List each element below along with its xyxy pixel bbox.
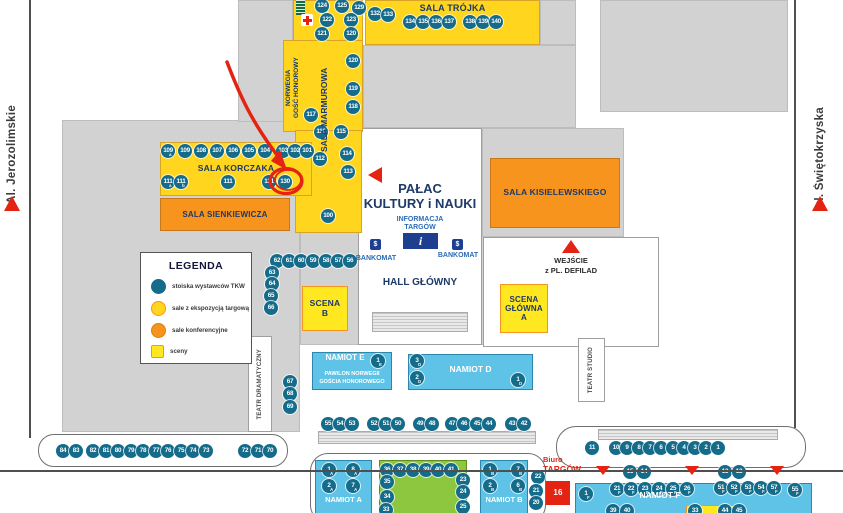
norwegia-label-2: GOŚĆ HONOROWY xyxy=(293,46,300,130)
stand-133: 133 xyxy=(381,8,395,22)
namiot-f-title: NAMIOT F xyxy=(618,491,702,500)
stand-106: 106 xyxy=(226,144,240,158)
stand-69: 69 xyxy=(283,400,297,414)
fair-information-label-line1: INFORMACJA xyxy=(370,216,470,223)
teatr-studio-label: TEATR STUDIO xyxy=(588,347,595,393)
stand-14: 14 xyxy=(637,465,651,479)
stand-11: 11 xyxy=(585,441,599,455)
scena-glowna-a-label: SCENA GŁÓWNA A xyxy=(505,295,543,323)
legend-label-2: sale konferencyjne xyxy=(172,327,228,334)
biuro-targow-16-label: 16 xyxy=(553,488,562,497)
first-aid-cross-icon xyxy=(301,14,313,26)
sala-marmurowa-label: SALA MARMUROWA xyxy=(320,50,329,170)
sala-kisielewskiego-label: SALA KISIELEWSKIEGO xyxy=(503,188,606,198)
stand-73: 73 xyxy=(199,444,213,458)
entrance-label-line1: WEJŚCIE xyxy=(531,256,611,265)
stand-48: 48 xyxy=(425,417,439,431)
fair-information-label-line2: TARGÓW xyxy=(370,224,470,231)
stand-53f: 53F xyxy=(741,481,755,495)
dollar-glyph: $ xyxy=(374,241,378,248)
stand-53: 53 xyxy=(345,417,359,431)
legend-box: LEGENDA stoiska wystawców TKWsale z eksp… xyxy=(140,252,252,364)
stand-54f: 54F xyxy=(754,481,768,495)
stand-114: 114 xyxy=(340,147,354,161)
stand-72: 72 xyxy=(238,444,252,458)
stand-111b: 111b xyxy=(174,175,188,189)
scena-b-label: SCENA B xyxy=(310,299,341,319)
trade-fair-floor-map: SALA TRÓJKASALA KORCZAKASALA SIENKIEWICZ… xyxy=(0,0,843,513)
stand-7a: 7A xyxy=(346,479,360,493)
stand-34: 34 xyxy=(380,490,394,504)
stand-25: 25 xyxy=(456,500,470,513)
stand-134: 134 xyxy=(403,15,417,29)
dollar-glyph: $ xyxy=(456,241,460,248)
entrance-label-line2: z PL. DEFILAD xyxy=(531,266,611,275)
scena-glowna-a: SCENA GŁÓWNA A xyxy=(500,284,548,333)
stand-138: 138 xyxy=(463,15,477,29)
stairs xyxy=(372,312,468,332)
stand-130: 130 xyxy=(278,175,292,189)
road-left xyxy=(29,0,31,438)
atm-icon-right: $ xyxy=(452,239,463,250)
stand-120: 120 xyxy=(344,27,358,41)
main-hall-label: HALL GŁÓWNY xyxy=(360,277,480,288)
stand-20: 20 xyxy=(529,496,543,510)
stand-39f: 39F xyxy=(606,504,620,513)
stand-6b: 6B xyxy=(511,479,525,493)
stand-45f: 45F xyxy=(732,504,746,513)
legend-item-1: sale z ekspozycją targową xyxy=(151,301,251,316)
sala-trojka-label: SALA TRÓJKA xyxy=(420,3,486,13)
stand-123: 123 xyxy=(344,13,358,27)
stand-109: 109 xyxy=(178,144,192,158)
stand-113: 113 xyxy=(341,165,355,179)
stand-107: 107 xyxy=(210,144,224,158)
stand-111: 111 xyxy=(221,175,235,189)
stand-132: 132 xyxy=(368,7,382,21)
legend-title: LEGENDA xyxy=(141,260,251,272)
street-name-left: Al. Jerozolimskie xyxy=(6,52,18,204)
biuro-targow-16: 16 xyxy=(546,481,570,505)
namiot-d-title: NAMIOT D xyxy=(428,365,513,374)
information-point-icon: i xyxy=(403,233,438,249)
stand-15: 15 xyxy=(623,465,637,479)
stand-13: 13 xyxy=(718,465,732,479)
stand-105: 105 xyxy=(242,144,256,158)
legend-swatch-0 xyxy=(151,279,166,294)
namiot-e-sub-1: PAWILON NORWEGII xyxy=(313,371,391,377)
legend-label-3: sceny xyxy=(170,348,188,355)
legend-swatch-1 xyxy=(151,301,166,316)
stand-55f: 55F xyxy=(788,483,802,497)
stand-135: 135 xyxy=(416,15,430,29)
legend-item-0: stoiska wystawców TKW xyxy=(151,279,251,294)
legend-label-1: sale z ekspozycją targową xyxy=(172,305,249,312)
stand-74: 74 xyxy=(186,444,200,458)
stand-2d: 2D xyxy=(410,371,424,385)
stand-59: 59 xyxy=(306,254,320,268)
stand-115: 115 xyxy=(334,125,348,139)
stand-104: 104 xyxy=(258,144,272,158)
road-right xyxy=(794,0,796,428)
stand-136: 136 xyxy=(429,15,443,29)
information-i-glyph: i xyxy=(419,234,422,249)
stand-46: 46 xyxy=(457,417,471,431)
namiot-e-title: NAMIOT E xyxy=(316,354,374,363)
teatr-dramatyczny-label: TEATR DRAMATYCZNY xyxy=(257,349,264,420)
namiot-b-title: NAMIOT B xyxy=(481,496,527,504)
stand-137: 137 xyxy=(442,15,456,29)
stand-101: 101 xyxy=(300,144,314,158)
scena-b: SCENA B xyxy=(302,286,348,331)
stand-131: 131 xyxy=(262,175,276,189)
stand-50: 50 xyxy=(391,417,405,431)
road-bottom xyxy=(0,470,843,472)
stand-76: 76 xyxy=(161,444,175,458)
stand-2a: 2A xyxy=(322,479,336,493)
stand-51f: 51F xyxy=(714,481,728,495)
stand-140: 140 xyxy=(489,15,503,29)
stand-42: 42 xyxy=(517,417,531,431)
stairs xyxy=(318,431,536,444)
stand-44f: 44F xyxy=(718,504,732,513)
stand-139: 139 xyxy=(476,15,490,29)
medical-point-badge xyxy=(296,0,305,15)
stand-57f: 57F xyxy=(767,481,781,495)
stand-117: 117 xyxy=(304,108,318,122)
sala-korczaka-label: SALA KORCZAKA xyxy=(198,164,274,174)
sala-sienkiewicza: SALA SIENKIEWICZA xyxy=(160,198,290,231)
legend-items: stoiska wystawców TKWsale z ekspozycją t… xyxy=(141,279,251,358)
stand-82: 82 xyxy=(86,444,100,458)
stand-3d: 3D xyxy=(410,354,424,368)
legend-label-0: stoiska wystawców TKW xyxy=(172,283,245,290)
stand-109a: 109a xyxy=(161,144,175,158)
stand-111a: 111a xyxy=(161,175,175,189)
gray-block xyxy=(540,0,576,45)
street-name-right: ul. Świętokrzyska xyxy=(814,50,826,208)
sala-kisielewskiego: SALA KISIELEWSKIEGO xyxy=(490,158,620,228)
stand-118: 118 xyxy=(346,100,360,114)
stand-108: 108 xyxy=(194,144,208,158)
stand-120: 120 xyxy=(346,54,360,68)
biuro-targow-1: Biuro xyxy=(543,456,585,464)
stand-83: 83 xyxy=(69,444,83,458)
stand-52f: 52F xyxy=(727,481,741,495)
legend-swatch-2 xyxy=(151,323,166,338)
teatr-studio: TEATR STUDIO xyxy=(578,338,605,402)
stand-122: 122 xyxy=(320,13,334,27)
palace-title-line2: KULTURY i NAUKI xyxy=(355,196,485,211)
palace-title-line1: PAŁAC xyxy=(360,181,480,196)
gray-block xyxy=(363,45,576,128)
stand-35: 35 xyxy=(380,475,394,489)
namiot-e-sub-2: GOŚCIA HONOROWEGO xyxy=(313,379,391,385)
stand-70: 70 xyxy=(263,444,277,458)
stand-24: 24 xyxy=(456,485,470,499)
stand-121: 121 xyxy=(315,27,329,41)
stand-1: 1 xyxy=(711,441,725,455)
norwegia-label-1: NORWEGIA xyxy=(285,52,292,124)
stand-66: 66 xyxy=(264,301,278,315)
stand-1d: 1D xyxy=(511,373,525,387)
stand-80: 80 xyxy=(111,444,125,458)
stand-119: 119 xyxy=(346,82,360,96)
stand-12: 12 xyxy=(732,465,746,479)
atm-icon-left: $ xyxy=(370,239,381,250)
gray-block xyxy=(600,0,788,112)
stand-33f: 33F xyxy=(688,504,702,513)
stand-84: 84 xyxy=(56,444,70,458)
stand-33: 33 xyxy=(379,503,393,513)
stand-100: 100 xyxy=(321,209,335,223)
legend-item-3: sceny xyxy=(151,345,251,358)
atm-label-left: BANKOMAT xyxy=(351,255,401,262)
stand-1f: 1F xyxy=(579,487,593,501)
stand-78: 78 xyxy=(136,444,150,458)
atm-label-right: BANKOMAT xyxy=(433,252,483,259)
stand-44: 44 xyxy=(482,417,496,431)
stand-2b: 2B xyxy=(483,479,497,493)
stand-40f: 40F xyxy=(620,504,634,513)
legend-item-2: sale konferencyjne xyxy=(151,323,251,338)
stand-68: 68 xyxy=(283,387,297,401)
legend-swatch-3 xyxy=(151,345,164,358)
namiot-a-title: NAMIOT A xyxy=(317,496,370,504)
sala-sienkiewicza-label: SALA SIENKIEWICZA xyxy=(182,210,267,219)
